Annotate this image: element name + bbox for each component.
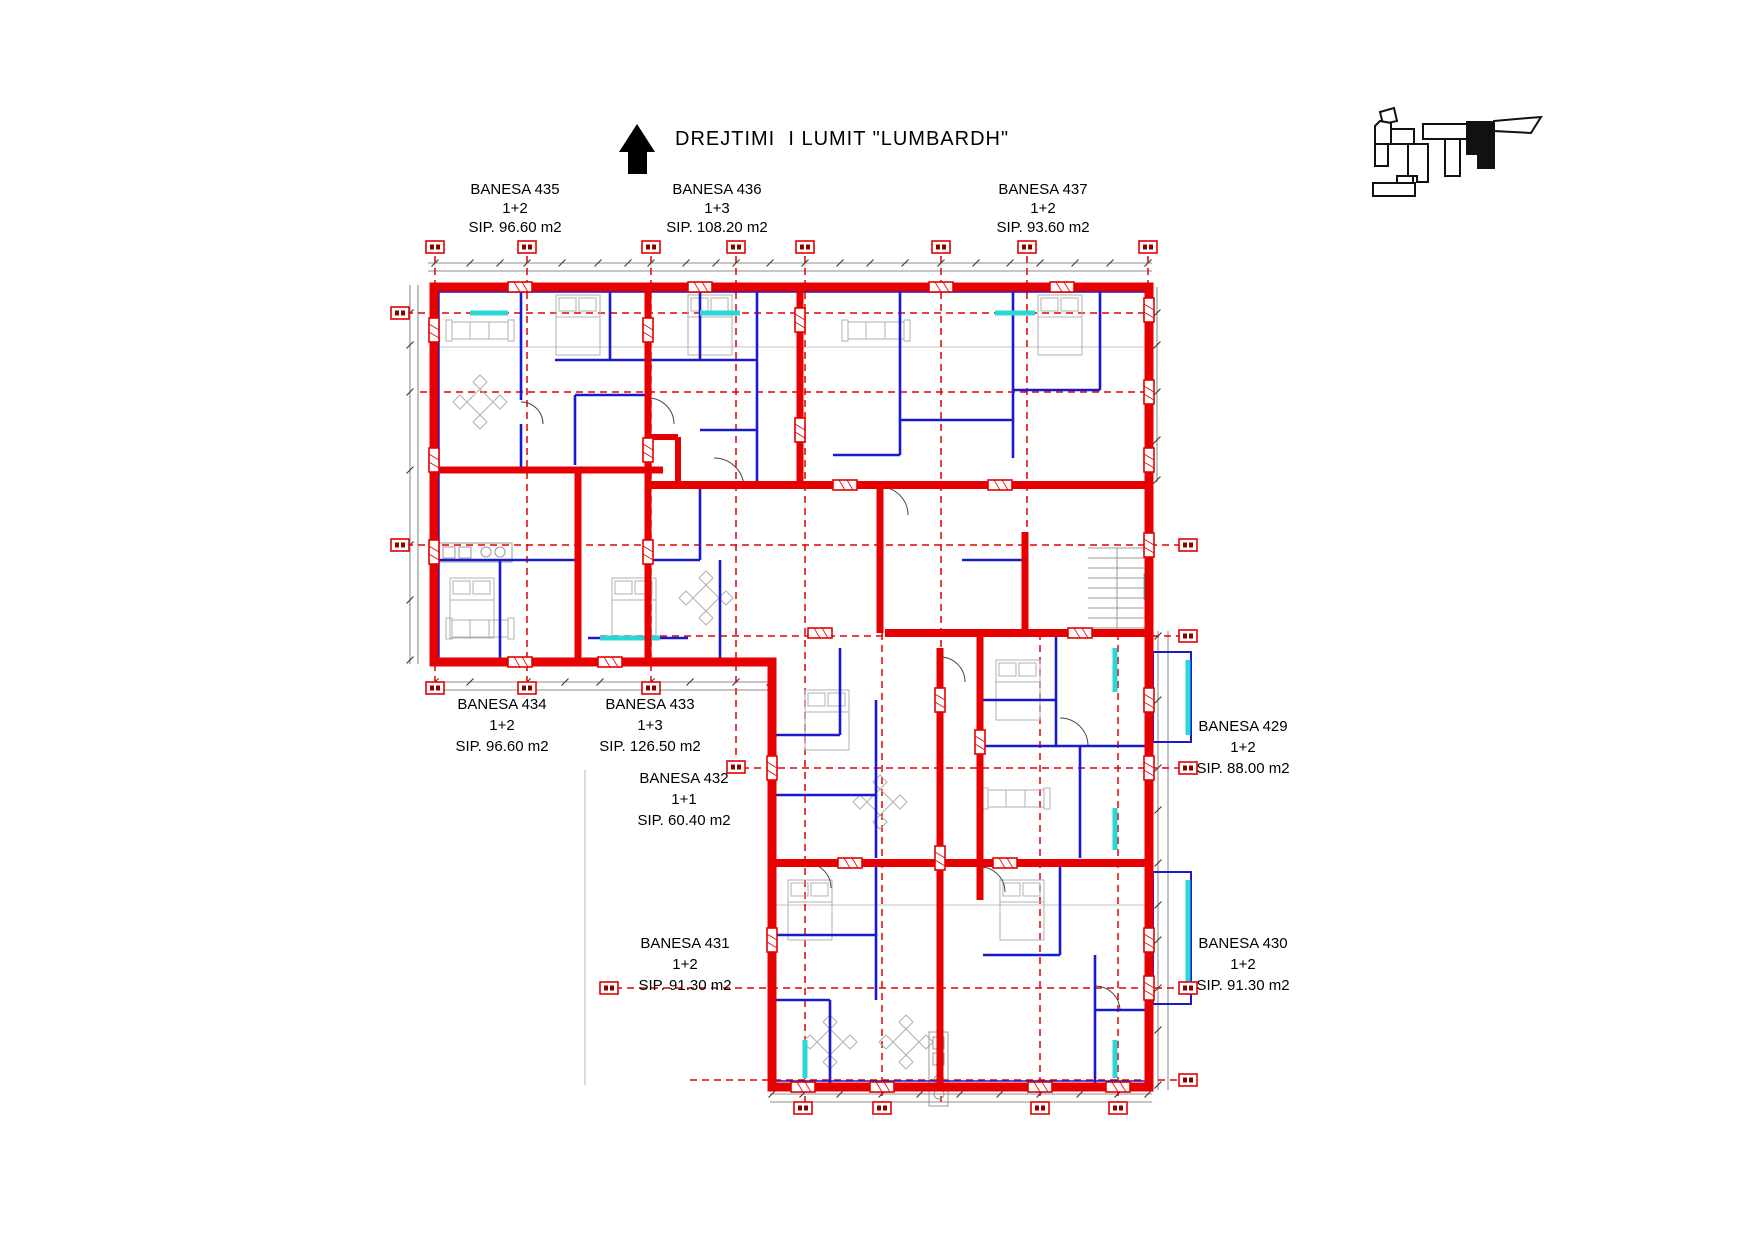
- grid-bubbles-layer: [391, 241, 1197, 1114]
- apartment-label-430: BANESA 430 1+2 SIP. 91.30 m2: [1196, 933, 1289, 996]
- north-arrow-icon: [619, 124, 655, 174]
- apartment-name: BANESA 434: [455, 694, 548, 715]
- axis-grid-layer: [406, 256, 1182, 1102]
- window-glass-layer: [470, 313, 1188, 1078]
- apartment-area: SIP. 126.50 m2: [599, 736, 700, 757]
- apartment-type: 1+2: [455, 715, 548, 736]
- apartment-type: 1+1: [637, 789, 730, 810]
- apartment-area: SIP. 60.40 m2: [637, 810, 730, 831]
- column-markers-layer: [429, 282, 1154, 1092]
- apartment-label-432: BANESA 432 1+1 SIP. 60.40 m2: [637, 768, 730, 831]
- partition-walls-layer: [438, 290, 1191, 1083]
- apartment-area: SIP. 96.60 m2: [468, 218, 561, 237]
- apartment-type: 1+2: [638, 954, 731, 975]
- apartment-label-431: BANESA 431 1+2 SIP. 91.30 m2: [638, 933, 731, 996]
- apartment-label-437: BANESA 437 1+2 SIP. 93.60 m2: [996, 180, 1089, 237]
- apartment-area: SIP. 108.20 m2: [666, 218, 767, 237]
- apartment-name: BANESA 436: [666, 180, 767, 199]
- apartment-area: SIP. 88.00 m2: [1196, 758, 1289, 779]
- apartment-type: 1+2: [1196, 954, 1289, 975]
- apartment-name: BANESA 431: [638, 933, 731, 954]
- key-plan-current-block: [1467, 122, 1494, 154]
- red-walls-layer: [434, 287, 1149, 1087]
- apartment-type: 1+2: [996, 199, 1089, 218]
- apartment-name: BANESA 430: [1196, 933, 1289, 954]
- apartment-name: BANESA 437: [996, 180, 1089, 199]
- staircase: [1088, 548, 1146, 628]
- apartment-label-435: BANESA 435 1+2 SIP. 96.60 m2: [468, 180, 561, 237]
- floor-plan-drawing: [0, 0, 1755, 1240]
- apartment-label-433: BANESA 433 1+3 SIP. 126.50 m2: [599, 694, 700, 757]
- floor-plan-sheet: DREJTIMI I LUMIT "LUMBARDH" BANESA 435 1…: [0, 0, 1755, 1240]
- apartment-label-434: BANESA 434 1+2 SIP. 96.60 m2: [455, 694, 548, 757]
- drawing-title: DREJTIMI I LUMIT "LUMBARDH": [675, 128, 1009, 151]
- apartment-type: 1+2: [1196, 737, 1289, 758]
- apartment-area: SIP. 96.60 m2: [455, 736, 548, 757]
- apartment-type: 1+3: [666, 199, 767, 218]
- key-plan: [1373, 108, 1541, 196]
- apartment-area: SIP. 91.30 m2: [638, 975, 731, 996]
- apartment-name: BANESA 432: [637, 768, 730, 789]
- apartment-area: SIP. 91.30 m2: [1196, 975, 1289, 996]
- apartment-name: BANESA 433: [599, 694, 700, 715]
- apartment-type: 1+3: [599, 715, 700, 736]
- apartment-type: 1+2: [468, 199, 561, 218]
- apartment-label-436: BANESA 436 1+3 SIP. 108.20 m2: [666, 180, 767, 237]
- apartment-area: SIP. 93.60 m2: [996, 218, 1089, 237]
- apartment-label-429: BANESA 429 1+2 SIP. 88.00 m2: [1196, 716, 1289, 779]
- apartment-name: BANESA 435: [468, 180, 561, 199]
- apartment-name: BANESA 429: [1196, 716, 1289, 737]
